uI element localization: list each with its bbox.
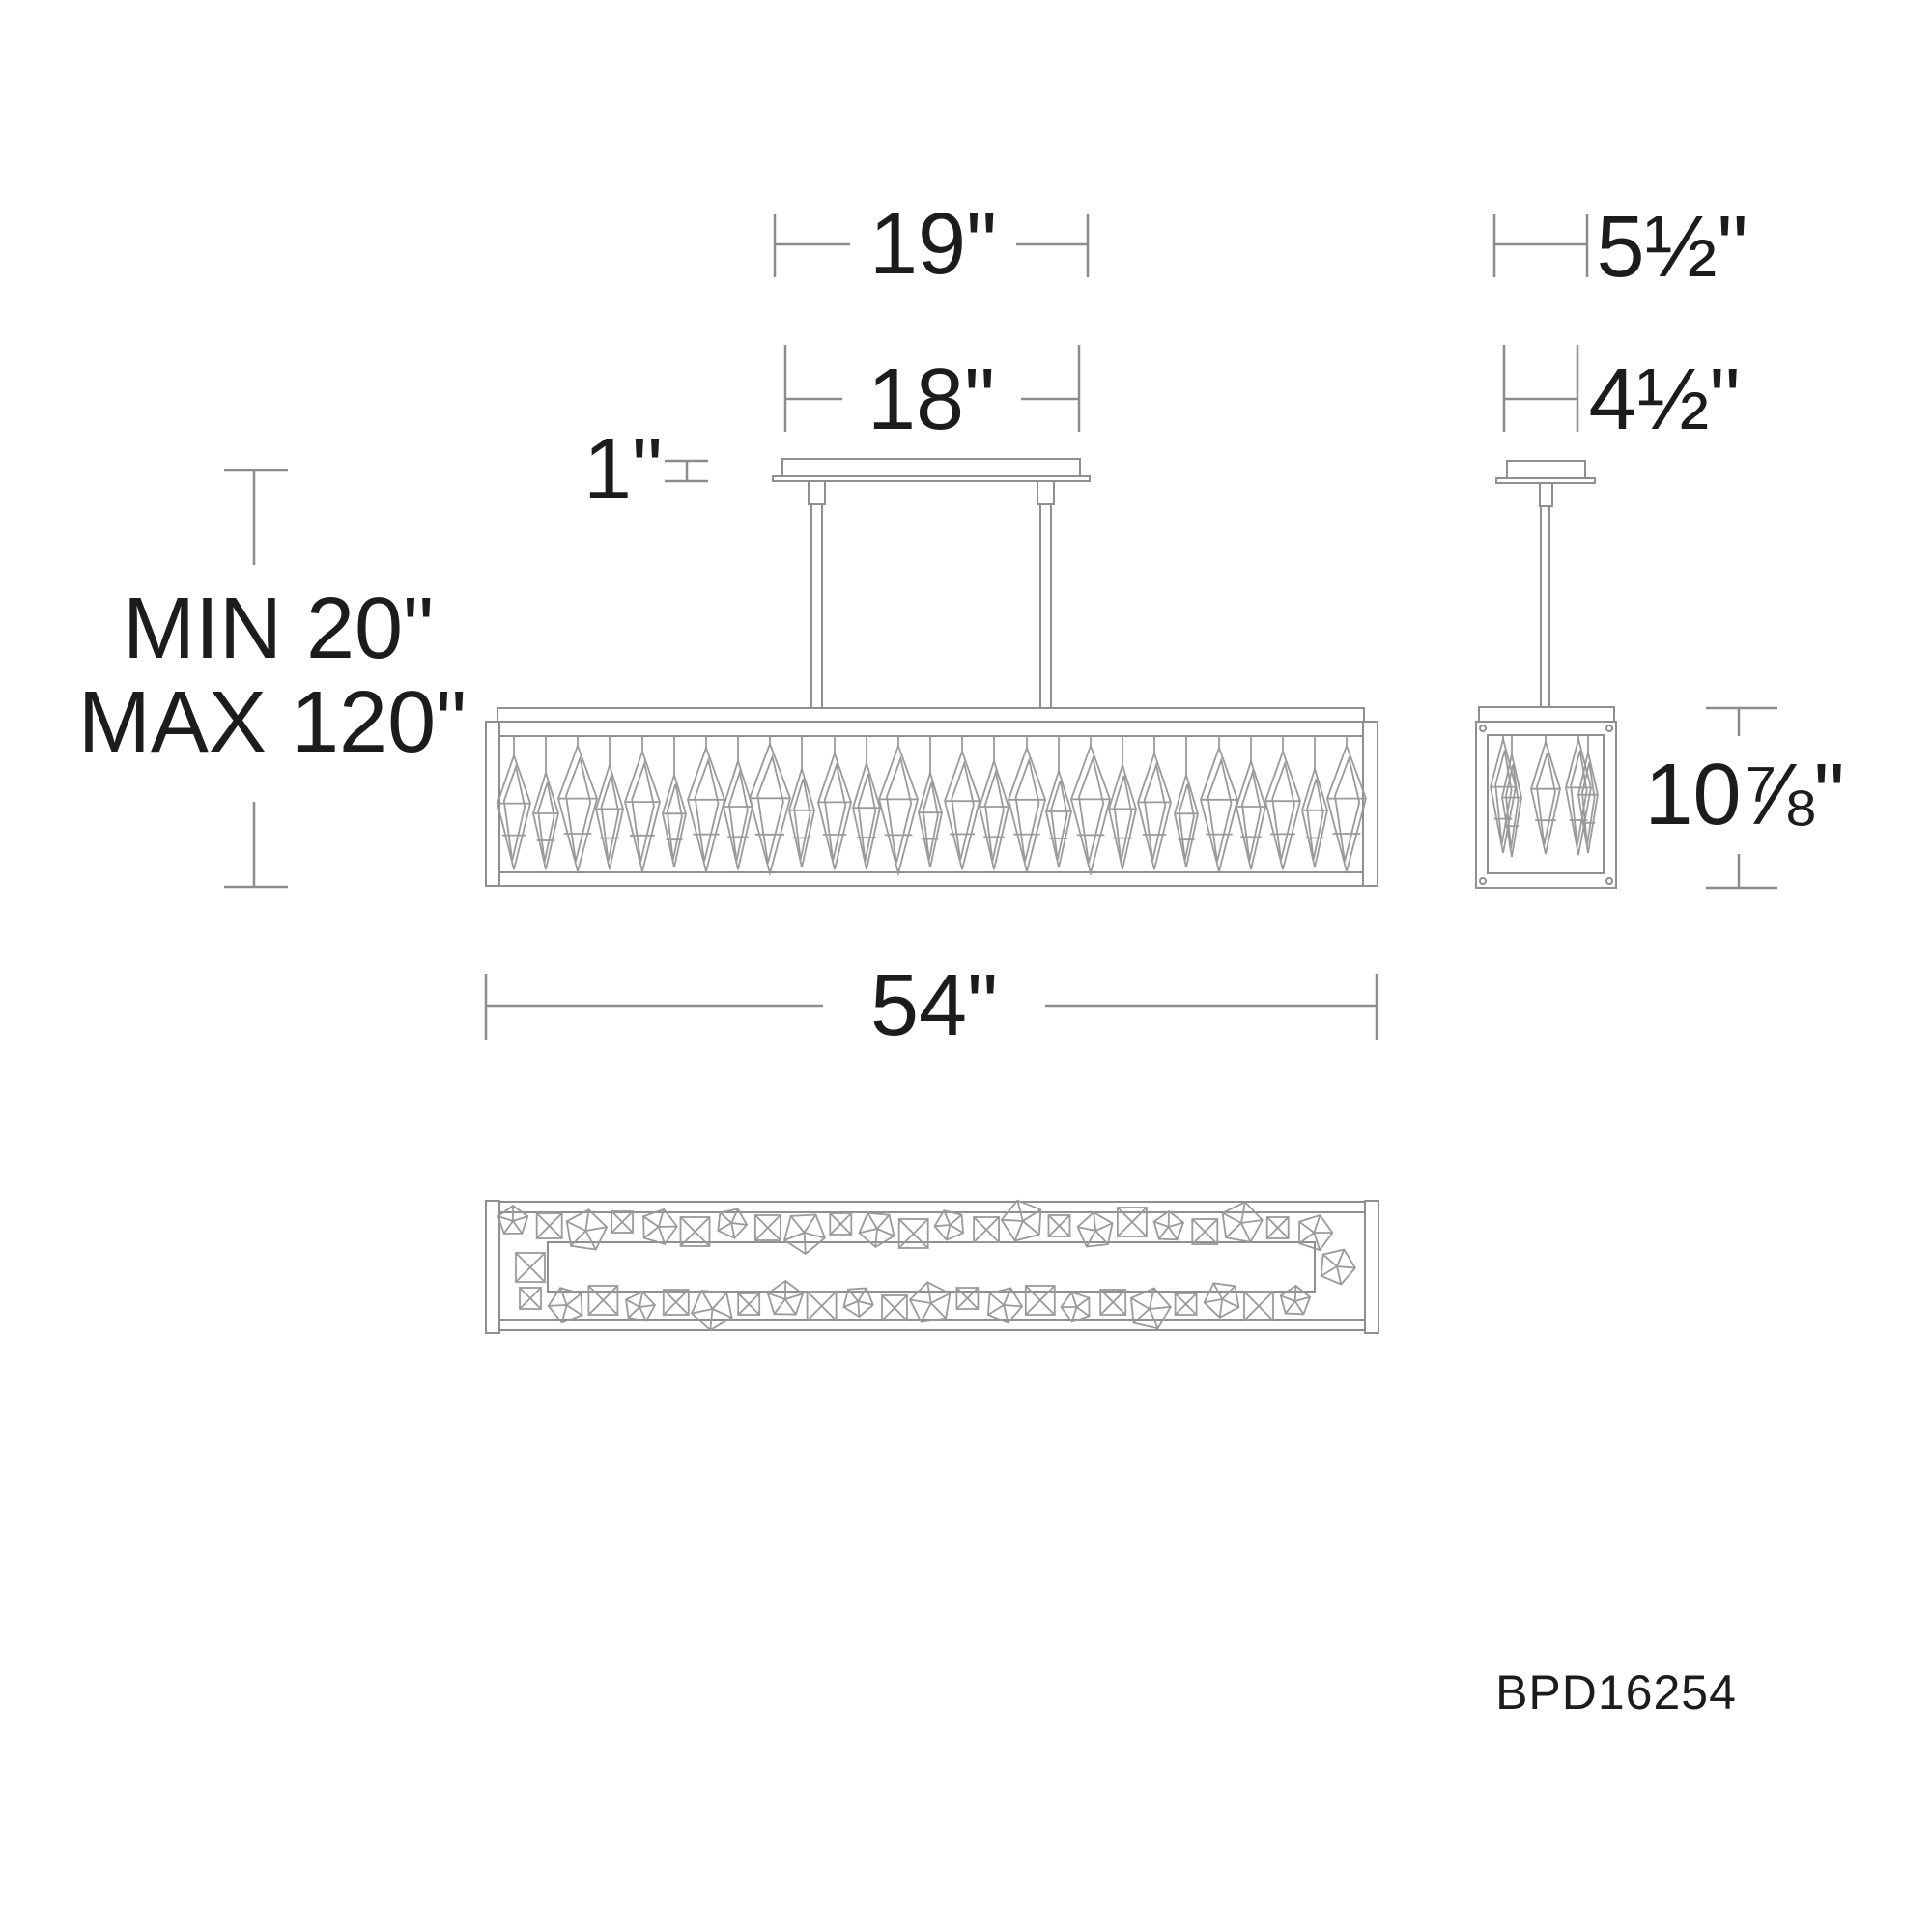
crystal-drop-facet [1016, 760, 1039, 862]
crystal-drop-facet [566, 758, 590, 862]
plan-view [486, 1201, 1378, 1333]
crystal-facet-line [858, 1301, 859, 1317]
side-canopy [1507, 461, 1585, 478]
top-rail [497, 708, 1364, 722]
crystal-drop-facet [825, 765, 845, 860]
crystal-drop-facet [1079, 758, 1103, 863]
crystal-drop-facet [887, 758, 911, 863]
dim-label-max-suspension: MAX 120" [78, 679, 467, 766]
front-view [486, 459, 1378, 886]
diagram-canvas: 19" 18" 1" MIN 20" MAX 120" 54" 5½" 4½" … [0, 0, 1932, 1932]
front-crystals [497, 736, 1366, 873]
plan-body [499, 1202, 1365, 1330]
plan-left-end-cap [486, 1201, 499, 1333]
crystal-drop-facet [1335, 758, 1359, 862]
left-rod-connector [809, 481, 825, 504]
side-rod-connector [1540, 483, 1552, 506]
side-view [1476, 461, 1616, 888]
crystal-facet-line [1169, 1211, 1170, 1227]
crystal-drop-facet [696, 760, 719, 862]
dim-label-fixture-height: 10⅞" [1644, 752, 1844, 838]
dim-label-canopy: 18" [867, 356, 995, 443]
dim-label-side-canopy: 4½" [1588, 356, 1740, 443]
left-suspension-rod [811, 504, 822, 708]
dim-label-canopy-height: 1" [583, 426, 663, 513]
crystal-drop-facet [952, 763, 974, 860]
part-number: BPD16254 [1495, 1668, 1737, 1717]
right-rod-connector [1037, 481, 1054, 504]
canopy [782, 459, 1080, 476]
crystal-drop-facet [1208, 760, 1232, 862]
crystal-drop-facet [1145, 765, 1165, 860]
crystal-facet-line [549, 1305, 567, 1306]
dim-side-canopy-4-5 [1504, 345, 1577, 432]
dim-label-canopy-overall: 19" [869, 201, 997, 288]
dim-label-fixture-length: 54" [870, 962, 998, 1049]
dim-canopy-height-1 [665, 461, 708, 481]
crystal-facet-line [1295, 1286, 1296, 1301]
crystal-drop-facet [632, 763, 654, 862]
crystal-drop-facet [504, 767, 525, 861]
right-suspension-rod [1040, 504, 1051, 708]
side-top-rail [1479, 707, 1614, 722]
crystal-facet-line [805, 1233, 806, 1254]
dim-label-side-overall: 5½" [1596, 204, 1747, 291]
side-suspension-rod [1541, 506, 1549, 707]
crystal-drop-facet [757, 756, 783, 863]
plan-right-end-cap [1365, 1201, 1378, 1333]
dim-side-overall-5-5 [1494, 214, 1587, 277]
crystal-drop-facet [1272, 763, 1294, 860]
dim-label-min-suspension: MIN 20" [123, 585, 434, 672]
crystal-facet-line [659, 1227, 677, 1228]
